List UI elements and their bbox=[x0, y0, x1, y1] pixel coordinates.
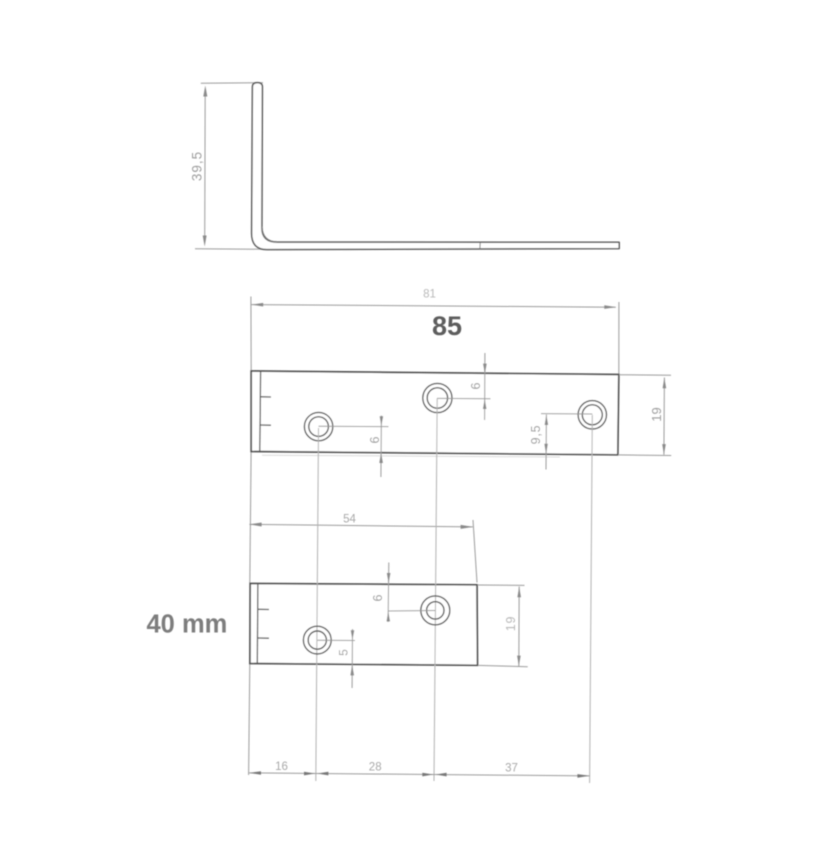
svg-text:9,5: 9,5 bbox=[529, 425, 543, 445]
svg-text:40 mm: 40 mm bbox=[147, 611, 228, 639]
svg-text:5: 5 bbox=[336, 649, 350, 656]
svg-text:19: 19 bbox=[504, 616, 518, 632]
svg-text:16: 16 bbox=[275, 761, 288, 773]
svg-text:54: 54 bbox=[343, 513, 356, 525]
svg-text:81: 81 bbox=[423, 289, 436, 301]
svg-text:85: 85 bbox=[432, 311, 462, 341]
svg-text:6: 6 bbox=[368, 436, 382, 443]
svg-text:28: 28 bbox=[369, 762, 382, 774]
svg-text:6: 6 bbox=[469, 382, 483, 389]
svg-text:37: 37 bbox=[505, 763, 518, 775]
svg-text:39,5: 39,5 bbox=[190, 151, 205, 181]
svg-text:6: 6 bbox=[371, 594, 385, 601]
svg-text:19: 19 bbox=[649, 407, 664, 421]
